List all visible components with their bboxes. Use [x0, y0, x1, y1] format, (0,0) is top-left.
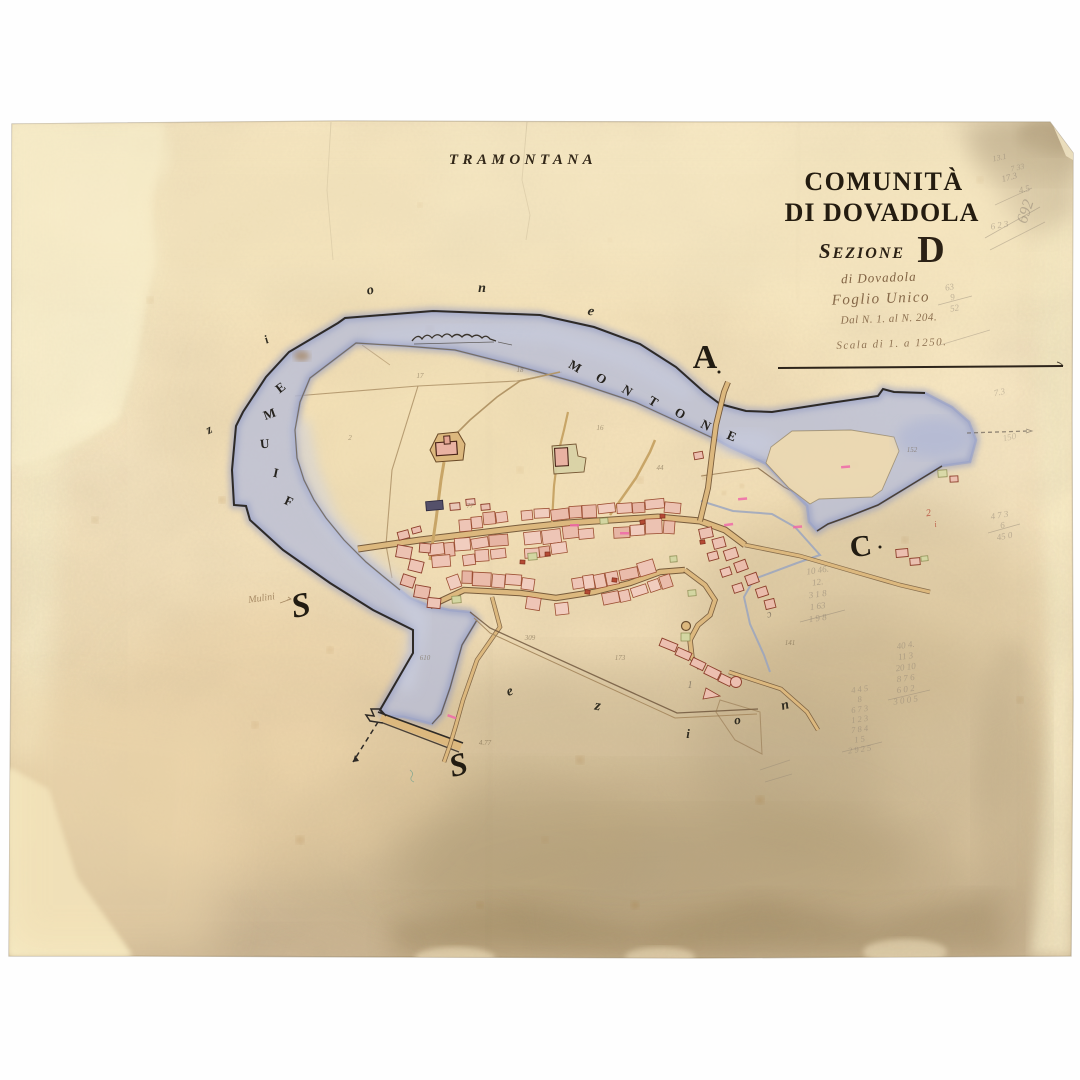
- svg-text:141: 141: [785, 639, 796, 647]
- svg-text:COMUNITÀ: COMUNITÀ: [804, 167, 963, 196]
- svg-text:n: n: [478, 281, 486, 296]
- svg-text:44: 44: [657, 464, 665, 472]
- svg-text:C: C: [848, 529, 874, 565]
- svg-text:DI DOVADOLA: DI DOVADOLA: [785, 198, 980, 227]
- svg-text:A: A: [693, 339, 718, 376]
- svg-text:173: 173: [615, 654, 626, 662]
- svg-text:77: 77: [467, 502, 475, 510]
- svg-text:i: i: [686, 726, 690, 741]
- svg-text:4.77: 4.77: [479, 739, 492, 747]
- svg-text:TRAMONTANA: TRAMONTANA: [449, 152, 597, 168]
- svg-text:309: 309: [524, 634, 536, 642]
- svg-text:152: 152: [907, 446, 918, 454]
- svg-text:17: 17: [417, 372, 425, 380]
- svg-text:16: 16: [597, 424, 605, 432]
- svg-text:di Dovadola: di Dovadola: [841, 269, 917, 287]
- svg-text:D: D: [917, 229, 944, 271]
- svg-text:12.: 12.: [811, 576, 824, 587]
- svg-text:18: 18: [517, 366, 525, 374]
- svg-text:1: 1: [688, 680, 693, 691]
- svg-text:610: 610: [420, 654, 431, 662]
- svg-text:2: 2: [348, 434, 352, 442]
